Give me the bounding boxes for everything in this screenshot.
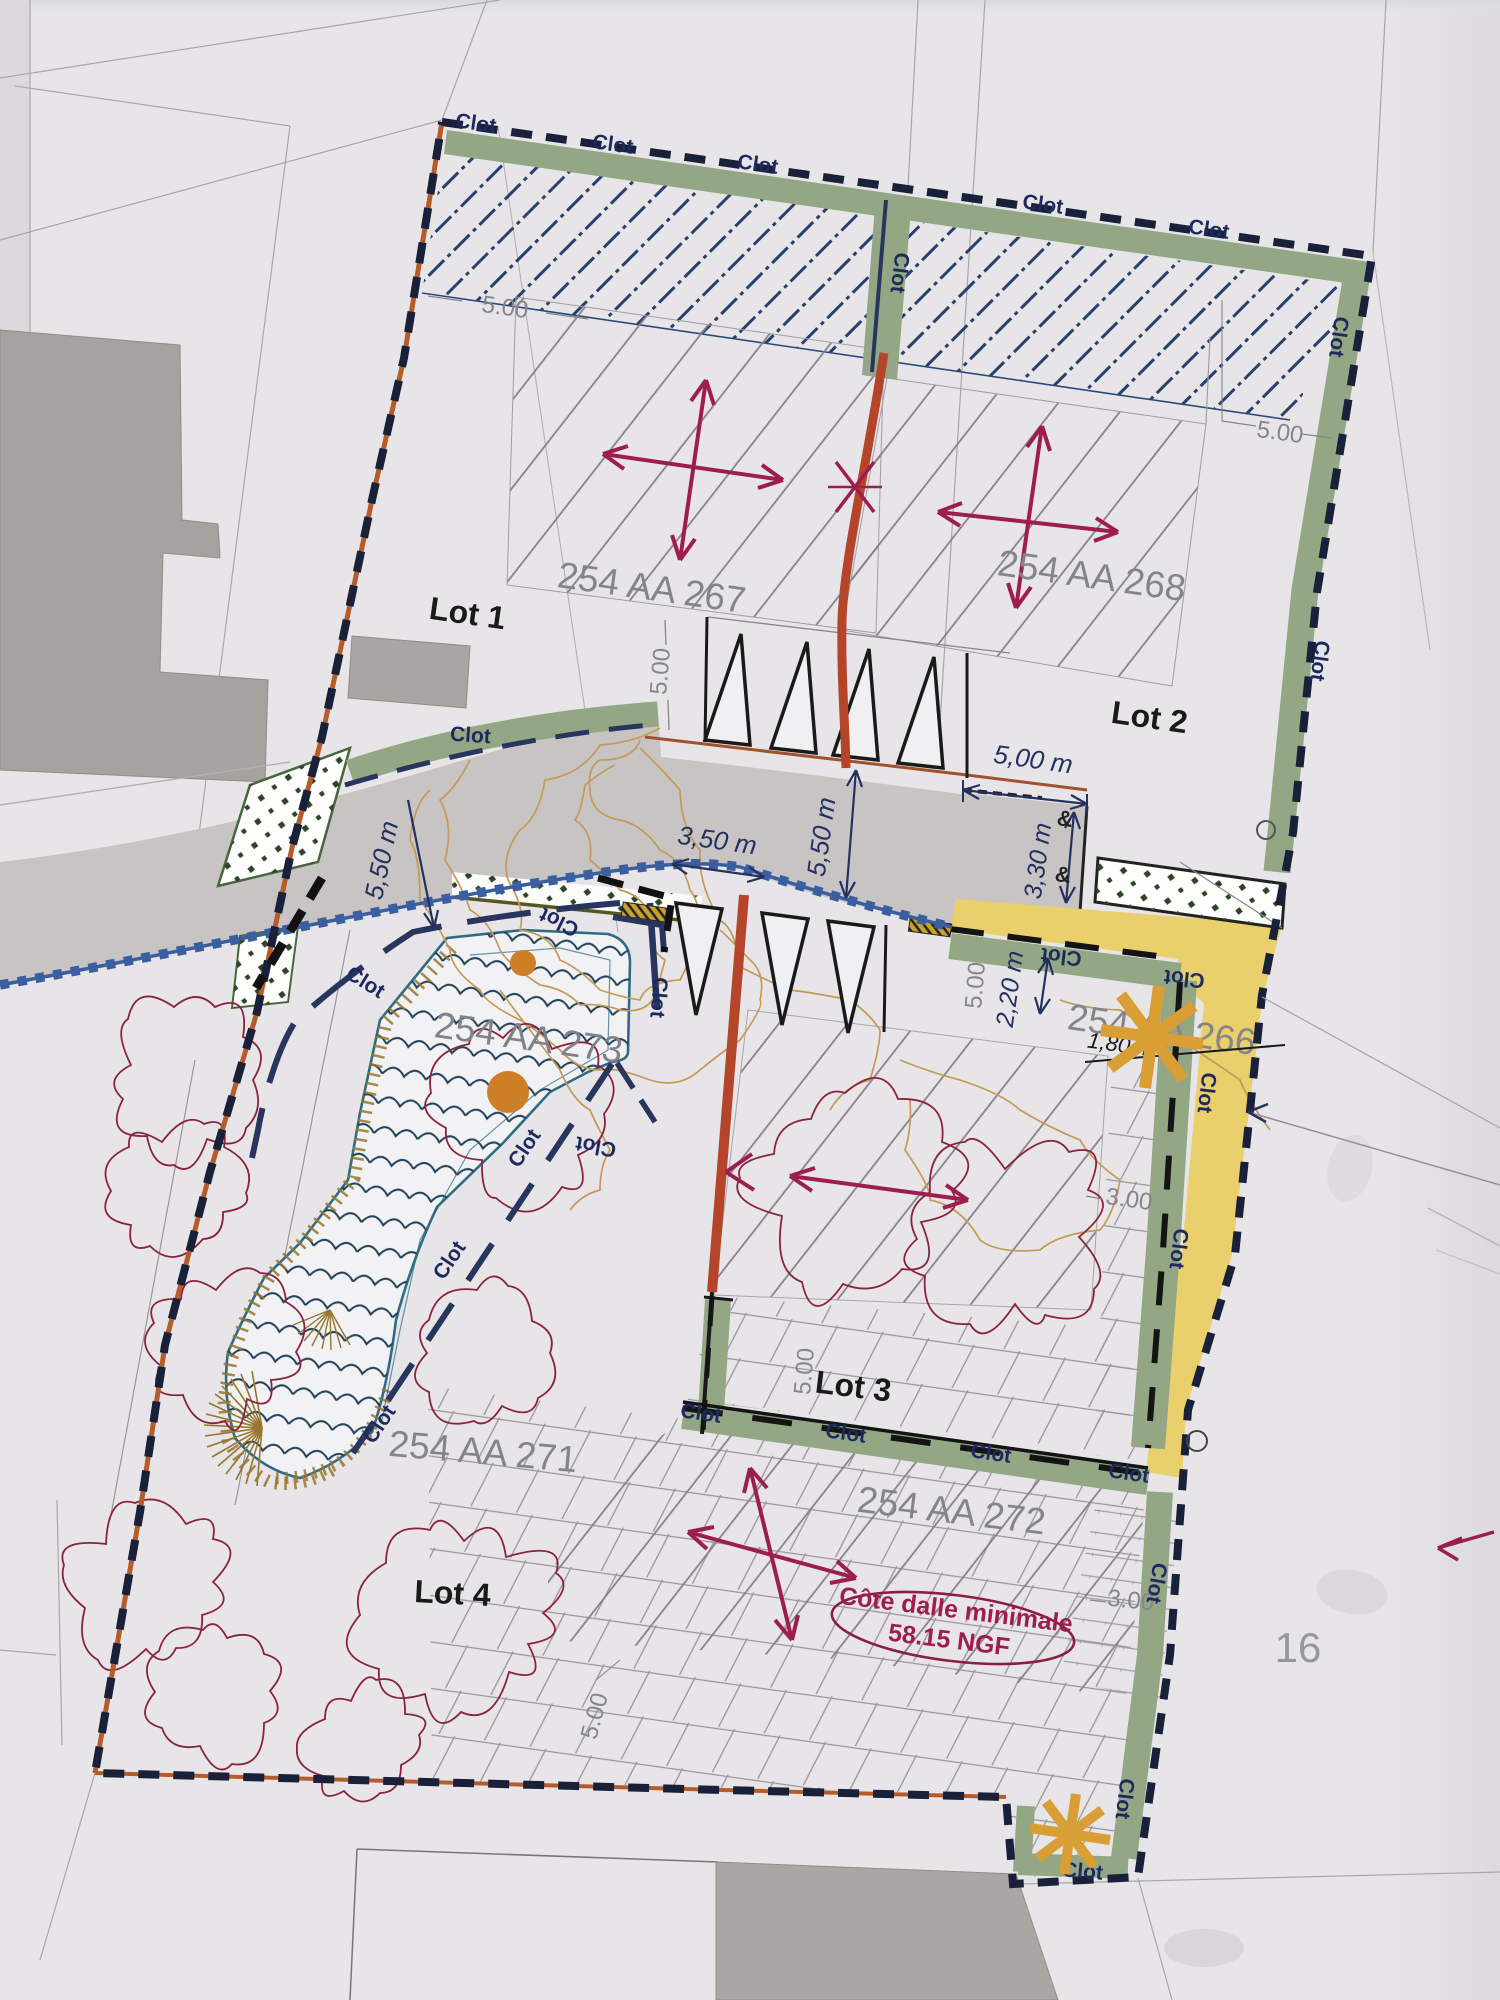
svg-text:16: 16 — [1275, 1624, 1322, 1671]
svg-text:Clot: Clot — [645, 976, 671, 1019]
svg-text:5.00: 5.00 — [645, 647, 676, 696]
svg-text:5.00: 5.00 — [960, 961, 991, 1010]
svg-text:Clot: Clot — [1163, 965, 1206, 992]
svg-text:Lot 4: Lot 4 — [413, 1573, 491, 1613]
svg-text:Clot: Clot — [1040, 943, 1083, 970]
svg-text:Clot: Clot — [449, 723, 491, 749]
